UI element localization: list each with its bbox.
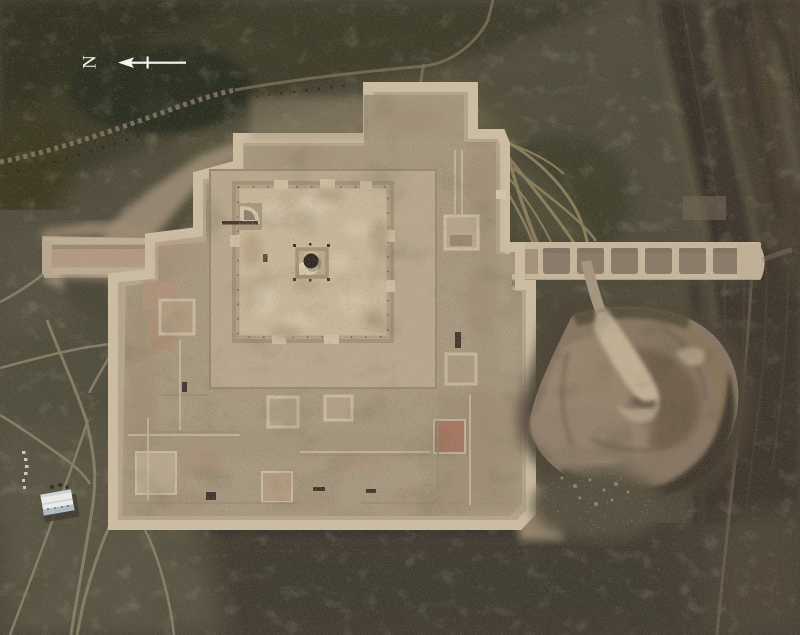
svg-text:N: N [79,55,100,69]
